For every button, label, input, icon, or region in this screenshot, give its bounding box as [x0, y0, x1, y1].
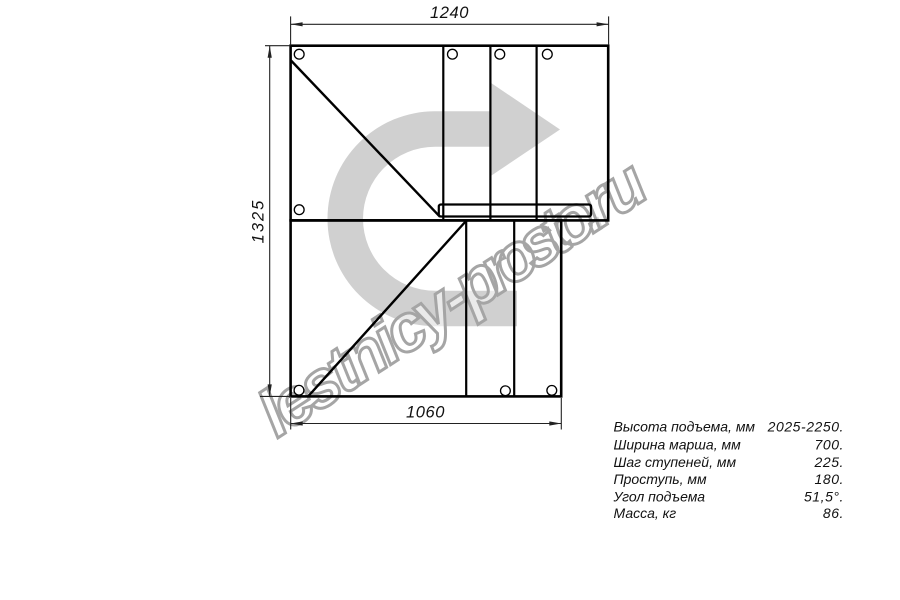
- svg-text:2025-2250.: 2025-2250.: [767, 419, 844, 435]
- svg-text:1060: 1060: [406, 404, 445, 422]
- svg-text:225.: 225.: [814, 454, 844, 470]
- svg-text:180.: 180.: [815, 471, 844, 487]
- svg-text:Масса, кг: Масса, кг: [614, 505, 677, 521]
- svg-text:Проступь, мм: Проступь, мм: [614, 471, 708, 487]
- svg-text:86.: 86.: [823, 505, 844, 521]
- svg-text:51,5°.: 51,5°.: [804, 489, 844, 505]
- svg-text:1325: 1325: [250, 199, 268, 244]
- svg-text:700.: 700.: [815, 437, 844, 453]
- svg-text:Шаг ступеней, мм: Шаг ступеней, мм: [614, 454, 737, 470]
- svg-text:Ширина марша, мм: Ширина марша, мм: [614, 437, 742, 453]
- svg-text:Высота подъема, мм: Высота подъема, мм: [614, 419, 756, 435]
- svg-text:1240: 1240: [430, 4, 469, 22]
- svg-text:Угол подъема: Угол подъема: [613, 489, 706, 505]
